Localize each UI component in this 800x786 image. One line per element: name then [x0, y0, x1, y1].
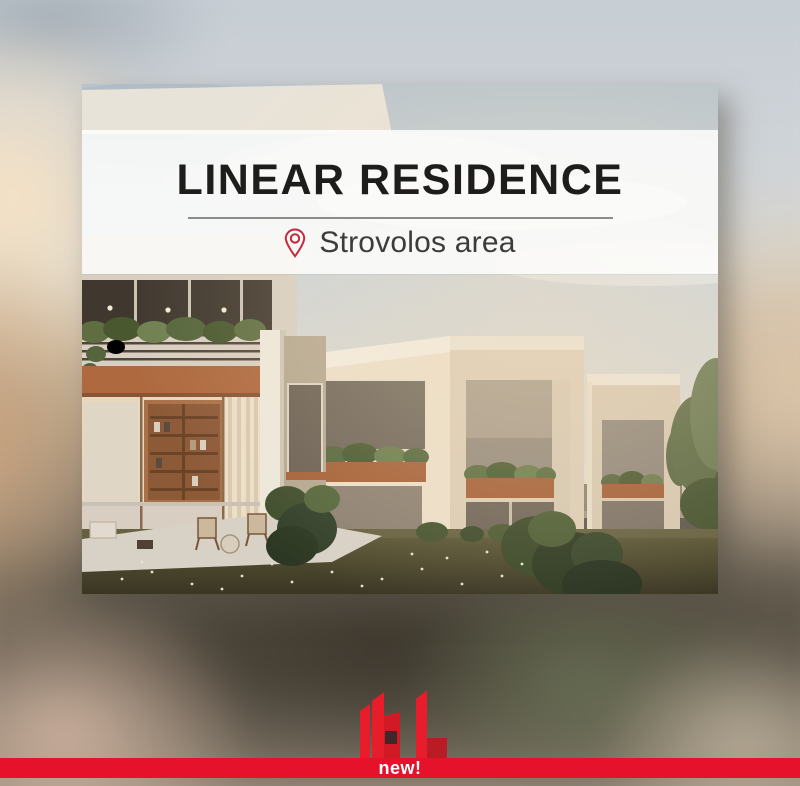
- location-pin-icon: [284, 228, 306, 258]
- promo-graphic: LINEAR RESIDENCE Strovolos area new!: [0, 0, 800, 786]
- location-label: Strovolos area: [319, 226, 515, 260]
- new-ribbon: new!: [0, 758, 800, 778]
- bl-logo: [355, 686, 452, 758]
- new-badge-label: new!: [378, 758, 421, 778]
- project-title: LINEAR RESIDENCE: [177, 157, 624, 203]
- location-row: Strovolos area: [284, 226, 515, 260]
- title-banner: LINEAR RESIDENCE Strovolos area: [82, 130, 718, 274]
- title-divider: [188, 217, 613, 219]
- residence-card: LINEAR RESIDENCE Strovolos area: [82, 84, 718, 594]
